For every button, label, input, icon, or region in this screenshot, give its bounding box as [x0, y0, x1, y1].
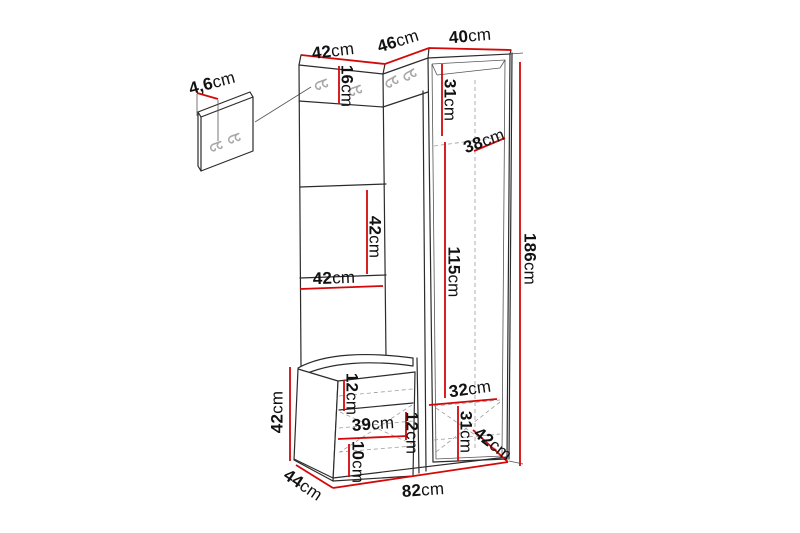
coat-hook-icon — [385, 76, 398, 88]
dimension-label-bench-bottom-clearance: 10cm — [350, 441, 367, 483]
dimension-label-top-width-right: 40cm — [448, 26, 492, 47]
dimension-label-bench-shelf-clearance: 12cm — [404, 412, 421, 454]
coat-hook-icon — [403, 69, 416, 81]
dimension-label-cabinet-interior-height: 115cm — [446, 246, 463, 297]
dimension-label-base-width: 82cm — [401, 480, 444, 500]
dimension-label-total-height: 186cm — [522, 233, 539, 285]
dimension-label-bench-interior-width: 39cm — [351, 414, 394, 434]
furniture-dimension-diagram: 42cm 46cm 40cm 4,6cm 16cm 31cm 38cm 42cm… — [0, 0, 800, 533]
dimension-label-hook-panel-height: 16cm — [339, 65, 356, 107]
dimension-label-bench-height: 42cm — [269, 391, 286, 433]
furniture-line-drawing — [0, 0, 800, 533]
coat-hook-icon — [316, 80, 328, 90]
wall-hook-panel — [197, 87, 311, 171]
dimension-label-cabinet-lower-interior-height: 31cm — [458, 411, 475, 453]
hook-strip — [299, 69, 428, 107]
dimension-label-shelf-opening-width: 42cm — [313, 269, 356, 287]
dimension-label-cabinet-upper-interior-height: 31cm — [442, 79, 459, 121]
dimension-label-bench-top-clearance: 12cm — [344, 373, 361, 415]
leader-line — [255, 87, 311, 122]
dimension-label-shelf-opening-height: 42cm — [367, 216, 384, 258]
